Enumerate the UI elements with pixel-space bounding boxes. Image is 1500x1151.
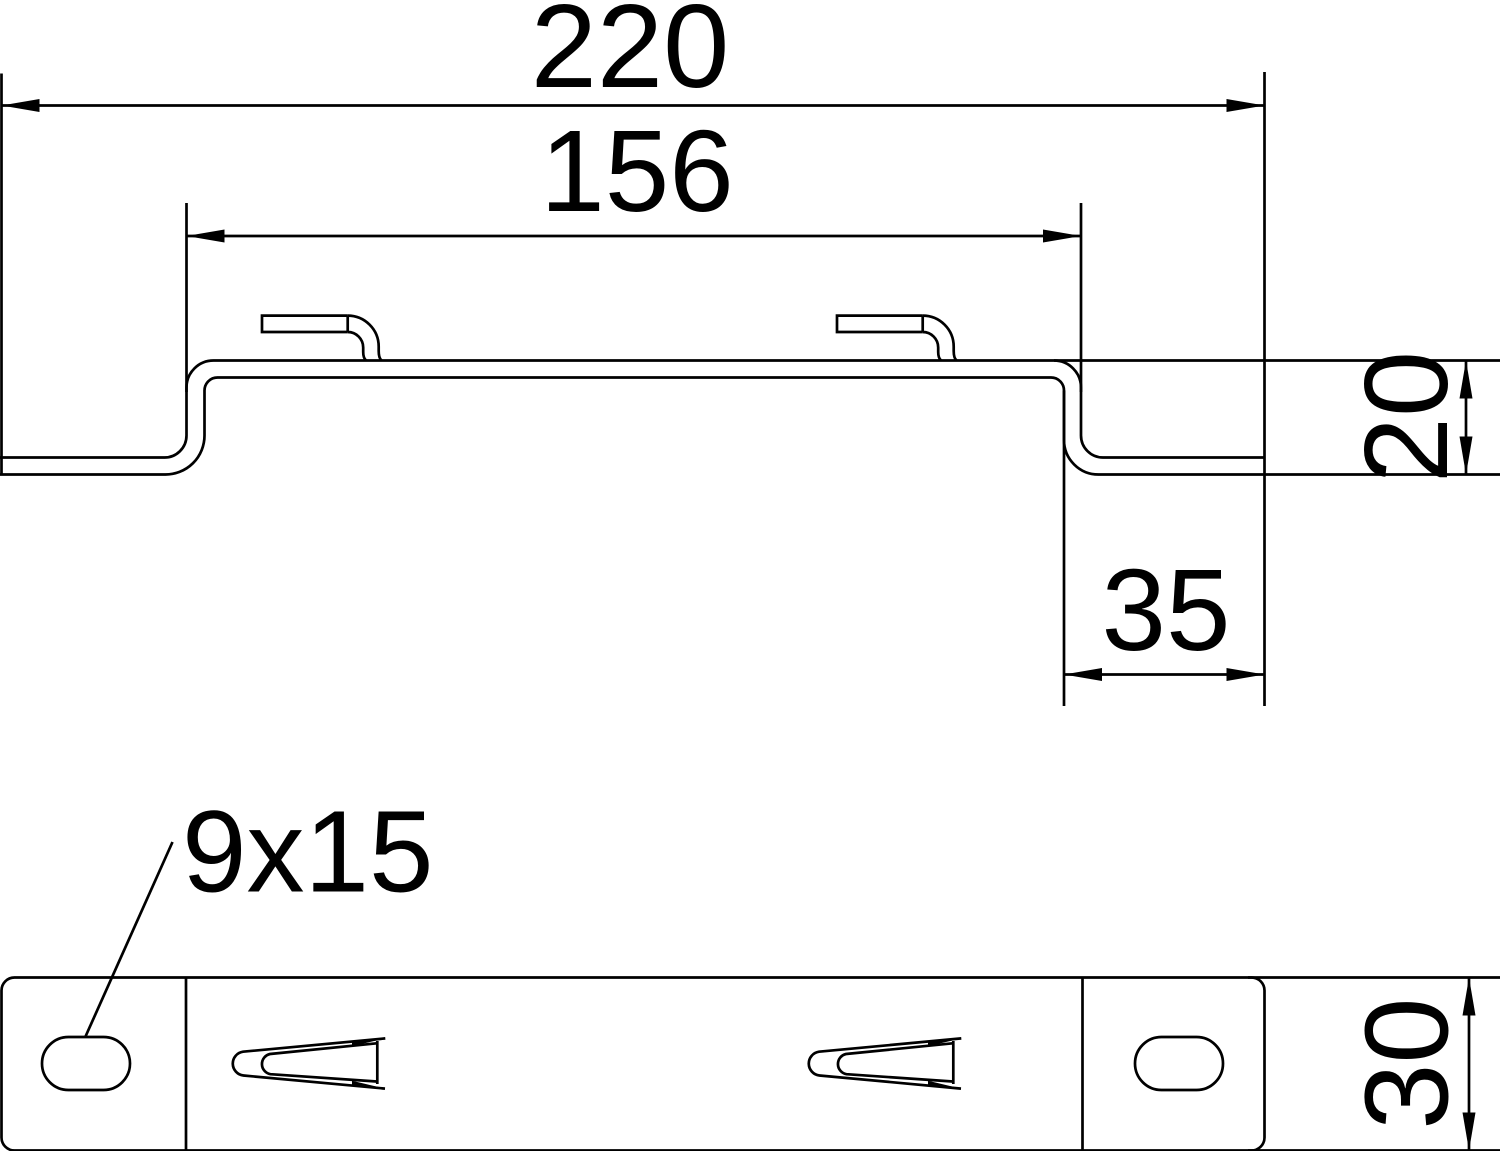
svg-text:30: 30 <box>1340 997 1473 1129</box>
svg-text:35: 35 <box>1101 545 1230 675</box>
svg-text:220: 220 <box>531 0 730 113</box>
svg-text:156: 156 <box>540 106 734 236</box>
svg-text:9x15: 9x15 <box>182 787 434 917</box>
svg-text:20: 20 <box>1340 351 1473 483</box>
